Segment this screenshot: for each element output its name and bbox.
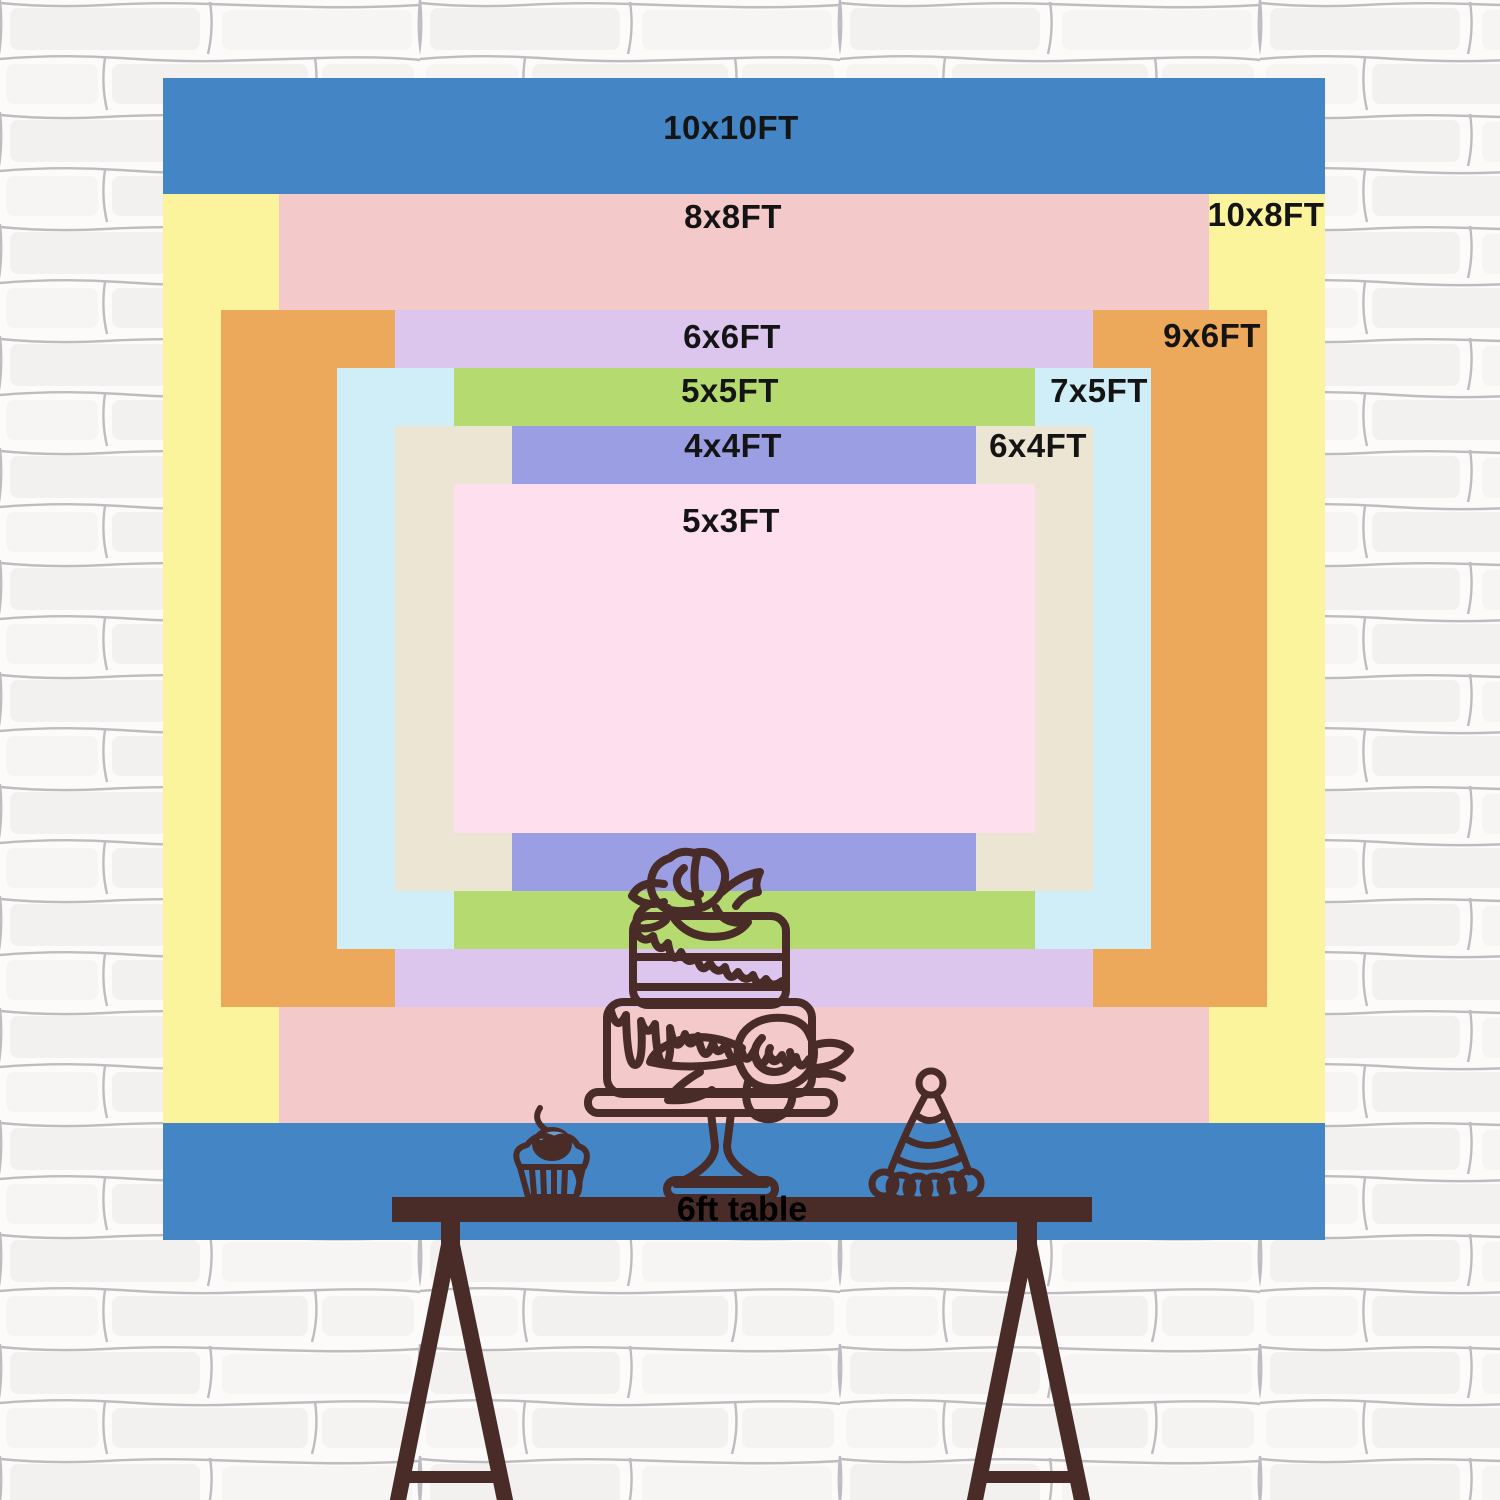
cupcake-icon [516, 1108, 587, 1197]
party-hat-icon [872, 1071, 981, 1200]
backdrop-size-chart: 10x10FT10x8FT8x8FT9x6FT6x6FT7x5FT5x5FT6x… [0, 0, 1500, 1500]
table-size-label: 6ft table [677, 1191, 807, 1230]
cake-table-illustration [0, 0, 1500, 1500]
trestle-table-icon [392, 1197, 1092, 1500]
tiered-cake-icon [588, 852, 850, 1198]
